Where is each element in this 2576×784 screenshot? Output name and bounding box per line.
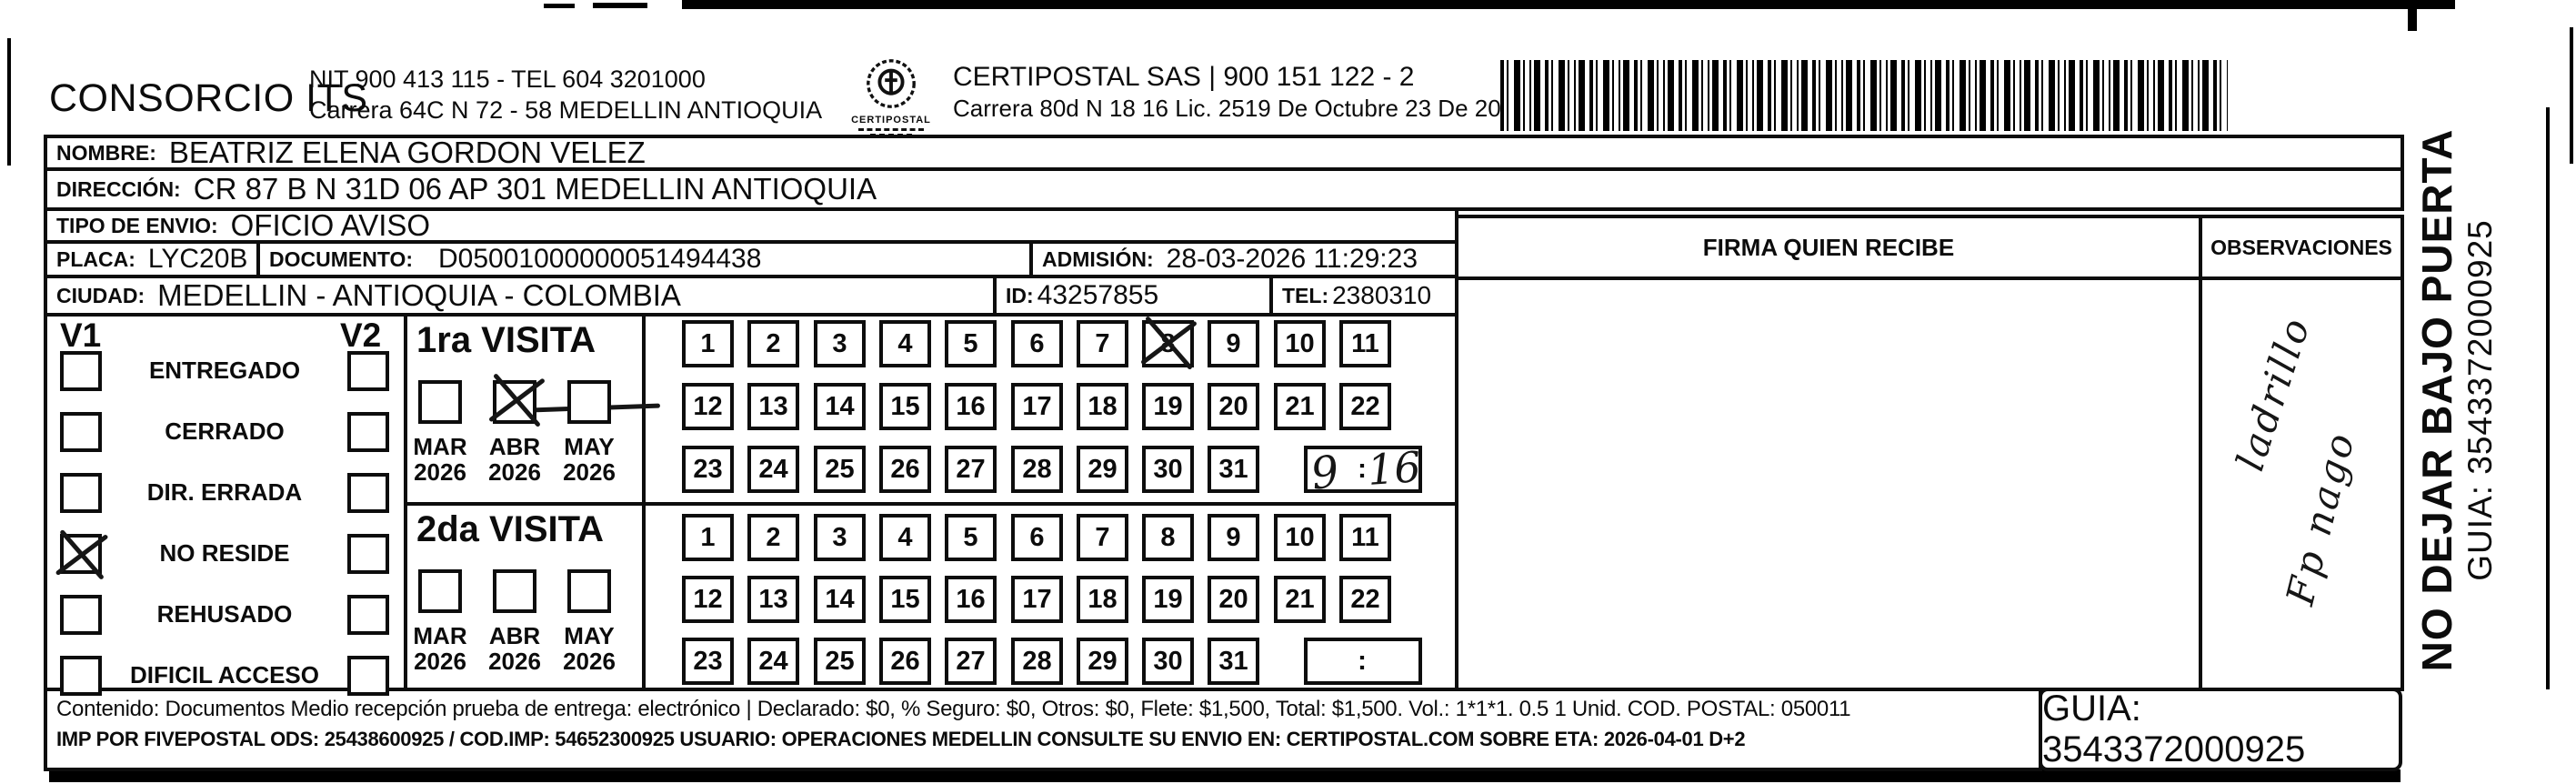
second-visit-day-3[interactable]: 3 [814,514,866,561]
no-dejar-bajo-puerta-text: NO DEJAR BAJO PUERTA [2412,129,2461,672]
second-visit-month-label: MAR [407,622,473,648]
id-cell: ID: 43257855 [993,275,1273,317]
tel-cell: TEL: 2380310 [1269,275,1458,317]
first-visit-day-26[interactable]: 26 [879,446,931,493]
v2-checkbox-cerrado[interactable] [347,412,389,452]
direccion-value: CR 87 B N 31D 06 AP 301 MEDELLIN ANTIOQU… [194,172,877,206]
second-visit-day-14[interactable]: 14 [814,576,866,623]
second-visit-month-checkbox-may[interactable] [567,569,611,613]
v1-checkbox-entregado[interactable] [60,351,102,391]
scanned-postal-delivery-form: CONSORCIO ITS NIT 900 413 115 - TEL 604 … [0,0,2576,784]
first-visit-day-12[interactable]: 12 [682,383,734,430]
second-visit-day-25[interactable]: 25 [814,638,866,685]
admision-cell: ADMISIÓN: 28-03-2026 11:29:23 [1029,240,1458,278]
second-visit-day-31[interactable]: 31 [1208,638,1259,685]
company-address-line: Carrera 64C N 72 - 58 MEDELLIN ANTIOQUIA [309,95,822,126]
certipostal-info-block: CERTIPOSTAL SAS | 900 151 122 - 2 Carrer… [953,62,1528,124]
admision-value: 28-03-2026 11:29:23 [1167,244,1418,275]
second-visit-year-label: 2026 [556,648,622,673]
first-visit-day-10[interactable]: 10 [1274,320,1326,367]
status-option-label-dir-errada: DIR. ERRADA [107,478,342,506]
first-visit-day-15[interactable]: 15 [879,383,931,430]
first-visit-handwritten-minutes: 16 [1366,442,1422,495]
logo-underline [858,128,924,131]
tipo-envio-value: OFICIO AVISO [231,208,430,243]
v2-checkbox-no-reside[interactable] [347,534,389,574]
first-visit-day-4[interactable]: 4 [879,320,931,367]
placa-cell: PLACA: LYC20B [44,240,260,278]
second-visit-day-17[interactable]: 17 [1011,576,1063,623]
tipo-envio-label: TIPO DE ENVIO: [56,214,218,238]
v1-checkbox-dificil-acceso[interactable] [60,656,102,696]
v2-checkbox-dir-errada[interactable] [347,473,389,513]
first-visit-day-24[interactable]: 24 [747,446,799,493]
first-visit-day-2[interactable]: 2 [747,320,799,367]
certipostal-logo: CERTIPOSTAL [844,56,938,136]
id-value: 43257855 [1037,280,1158,311]
first-visit-day-17[interactable]: 17 [1011,383,1063,430]
second-visit-day-2[interactable]: 2 [747,514,799,561]
v2-checkbox-entregado[interactable] [347,351,389,391]
ciudad-label: CIUDAD: [56,284,145,308]
scan-artifact-dash [593,3,647,8]
first-visit-month-label: MAR [407,433,473,458]
first-visit-month-label: MAY [556,433,622,458]
second-visit-day-5[interactable]: 5 [945,514,997,561]
first-visit-day-14[interactable]: 14 [814,383,866,430]
status-option-label-entregado: ENTREGADO [107,357,342,384]
v2-column-header: V2 [340,317,381,355]
second-visit-day-1[interactable]: 1 [682,514,734,561]
second-visit-day-22[interactable]: 22 [1339,576,1391,623]
scan-artifact-dash [544,4,575,8]
certipostal-name-line: CERTIPOSTAL SAS | 900 151 122 - 2 [953,62,1528,93]
second-visit-day-7[interactable]: 7 [1077,514,1128,561]
id-label: ID: [1006,284,1034,308]
documento-cell: DOCUMENTO: D05001000000051494438 [256,240,1033,278]
first-visit-title: 1ra VISITA [416,320,596,361]
v2-checkbox-rehusado[interactable] [347,595,389,635]
second-visit-day-18[interactable]: 18 [1077,576,1128,623]
second-visit-day-24[interactable]: 24 [747,638,799,685]
documento-label: DOCUMENTO: [269,247,413,272]
guia-number-box: GUIA: 3543372000925 [2039,688,2402,771]
first-visit-day-27[interactable]: 27 [945,446,997,493]
first-visit-day-9[interactable]: 9 [1208,320,1259,367]
scan-artifact-top-bar [682,0,2455,9]
first-visit-month-checkbox-may[interactable] [567,380,611,424]
second-visit-time-box[interactable]: : [1304,638,1422,685]
first-visit-day-1[interactable]: 1 [682,320,734,367]
first-visit-day-18[interactable]: 18 [1077,383,1128,430]
ciudad-cell: CIUDAD: MEDELLIN - ANTIOQUIA - COLOMBIA [44,275,997,317]
second-visit-month-checkbox-abr[interactable] [493,569,536,613]
scan-artifact-bottom-bar [49,769,2401,782]
v1-column-header: V1 [60,317,101,355]
company-nit-line: NIT 900 413 115 - TEL 604 3201000 [309,64,822,95]
first-visit-day-29[interactable]: 29 [1077,446,1128,493]
first-visit-day-28[interactable]: 28 [1011,446,1063,493]
nombre-row: NOMBRE: BEATRIZ ELENA GORDON VELEZ [44,135,2404,171]
v1-checkbox-rehusado[interactable] [60,595,102,635]
tipo-envio-row: TIPO DE ENVIO: OFICIO AVISO [44,207,1458,244]
first-visit-day-6[interactable]: 6 [1011,320,1063,367]
second-visit-year-label: 2026 [407,648,473,673]
firma-header: FIRMA QUIEN RECIBE [1455,215,2202,280]
v1-checkbox-cerrado[interactable] [60,412,102,452]
sidebar-guia-number: GUIA: 3543372000925 [2461,219,2500,581]
first-visit-day-21[interactable]: 21 [1274,383,1326,430]
certipostal-address-line: Carrera 80d N 18 16 Lic. 2519 De Octubre… [953,93,1528,124]
second-visit-day-27[interactable]: 27 [945,638,997,685]
v1-checkbox-no-reside[interactable] [60,534,102,574]
firma-signature-area[interactable] [1455,276,2202,691]
status-option-label-no-reside: NO RESIDE [107,539,342,567]
first-visit-year-label: 2026 [556,458,622,484]
second-visit-year-label: 2026 [482,648,547,673]
company-info-block: NIT 900 413 115 - TEL 604 3201000 Carrer… [309,64,822,126]
rotated-sidebar: NO DEJAR BAJO PUERTA GUIA: 3543372000925 [2403,86,2509,714]
first-visit-day-25[interactable]: 25 [814,446,866,493]
direccion-label: DIRECCIÓN: [56,177,181,202]
first-visit-month-checkbox-mar[interactable] [418,380,462,424]
nombre-label: NOMBRE: [56,141,156,166]
status-option-label-dificil-acceso: DIFICIL ACCESO [107,661,342,689]
first-visit-day-11[interactable]: 11 [1339,320,1391,367]
second-visit-day-30[interactable]: 30 [1142,638,1194,685]
second-visit-day-26[interactable]: 26 [879,638,931,685]
first-visit-month-checkbox-abr[interactable] [493,380,536,424]
tracking-barcode [1500,60,2228,131]
status-option-label-rehusado: REHUSADO [107,600,342,628]
second-visit-day-19[interactable]: 19 [1142,576,1194,623]
ciudad-value: MEDELLIN - ANTIOQUIA - COLOMBIA [157,278,681,313]
footer-imp-line: IMP POR FIVEPOSTAL ODS: 25438600925 / CO… [56,728,1745,751]
second-visit-title: 2da VISITA [416,509,604,550]
first-visit-day-23[interactable]: 23 [682,446,734,493]
first-visit-day-3[interactable]: 3 [814,320,866,367]
admision-label: ADMISIÓN: [1042,247,1154,272]
second-visit-day-11[interactable]: 11 [1339,514,1391,561]
first-visit-year-label: 2026 [407,458,473,484]
first-visit-day-16[interactable]: 16 [945,383,997,430]
second-visit-month-checkbox-mar[interactable] [418,569,462,613]
second-visit-day-12[interactable]: 12 [682,576,734,623]
direccion-row: DIRECCIÓN: CR 87 B N 31D 06 AP 301 MEDEL… [44,167,2404,211]
placa-value: LYC20B [148,244,248,275]
placa-label: PLACA: [56,247,135,272]
first-visit-day-5[interactable]: 5 [945,320,997,367]
second-visit-day-28[interactable]: 28 [1011,638,1063,685]
v2-checkbox-dificil-acceso[interactable] [347,656,389,696]
certipostal-logo-icon [863,56,919,113]
second-visit-month-label: MAY [556,622,622,648]
first-visit-day-7[interactable]: 7 [1077,320,1128,367]
first-visit-month-label: ABR [482,433,547,458]
second-visit-day-29[interactable]: 29 [1077,638,1128,685]
logo-text: CERTIPOSTAL [851,115,931,126]
footer-content-line: Contenido: Documentos Medio recepción pr… [56,697,1850,722]
second-visit-day-8[interactable]: 8 [1142,514,1194,561]
second-visit-day-15[interactable]: 15 [879,576,931,623]
first-visit-day-30[interactable]: 30 [1142,446,1194,493]
first-visit-day-20[interactable]: 20 [1208,383,1259,430]
second-visit-day-23[interactable]: 23 [682,638,734,685]
first-visit-day-13[interactable]: 13 [747,383,799,430]
second-visit-day-20[interactable]: 20 [1208,576,1259,623]
second-visit-day-16[interactable]: 16 [945,576,997,623]
second-visit-month-label: ABR [482,622,547,648]
v1-checkbox-dir-errada[interactable] [60,473,102,513]
scan-artifact-corner-line [2570,27,2573,164]
status-option-label-cerrado: CERRADO [107,417,342,445]
second-visit-day-6[interactable]: 6 [1011,514,1063,561]
second-visit-day-9[interactable]: 9 [1208,514,1259,561]
nombre-value: BEATRIZ ELENA GORDON VELEZ [169,136,646,170]
scan-artifact-left-tick [7,38,11,166]
tel-value: 2380310 [1332,281,1431,310]
second-visit-day-21[interactable]: 21 [1274,576,1326,623]
first-visit-day-31[interactable]: 31 [1208,446,1259,493]
scan-artifact-right-edge [2546,107,2550,689]
first-visit-day-22[interactable]: 22 [1339,383,1391,430]
tel-label: TEL: [1282,284,1328,308]
first-visit-year-label: 2026 [482,458,547,484]
scan-artifact-blob [2408,0,2417,31]
second-visit-day-10[interactable]: 10 [1274,514,1326,561]
second-visit-day-4[interactable]: 4 [879,514,931,561]
second-visit-day-13[interactable]: 13 [747,576,799,623]
documento-value: D05001000000051494438 [438,244,761,275]
first-visit-day-19[interactable]: 19 [1142,383,1194,430]
first-visit-day-8[interactable]: 8 [1142,320,1194,367]
